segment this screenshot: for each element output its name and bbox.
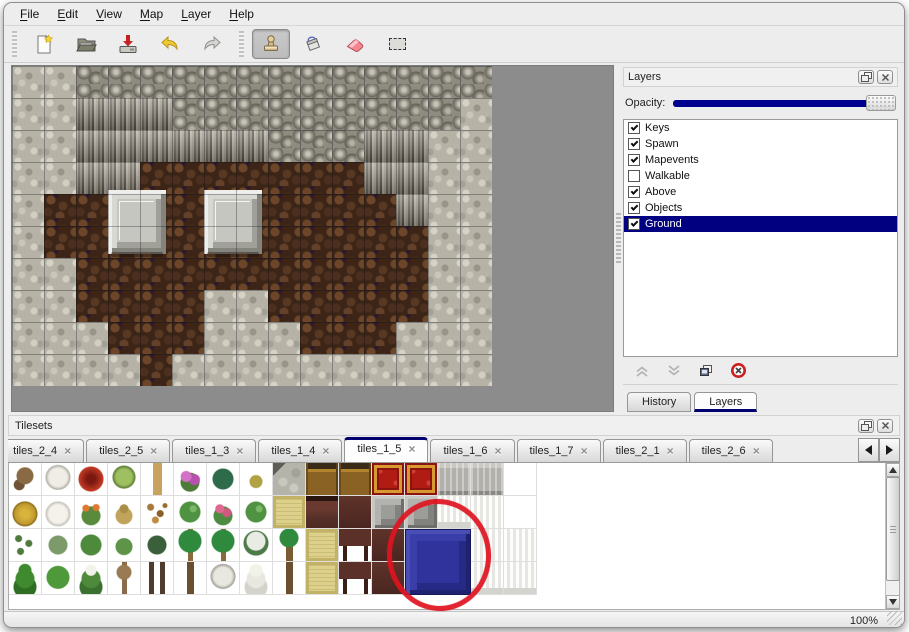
opacity-slider[interactable] (673, 95, 896, 111)
map-tile-rock-top (364, 98, 396, 130)
tileset-tab-label: tiles_1_3 (185, 445, 229, 457)
map-tile-brown-cobble-floor (172, 226, 204, 258)
map-tile-cliff-face (76, 98, 108, 130)
move-layer-up-button[interactable] (631, 361, 653, 381)
palette-tile-tatami[interactable] (306, 562, 339, 595)
palette-tile-maroon-legs[interactable] (339, 562, 372, 595)
palette-tile-snow-fir[interactable] (240, 562, 273, 595)
palette-tile-maroon-dark[interactable] (306, 496, 339, 529)
menu-edit[interactable]: Edit (48, 5, 87, 23)
palette-tile-palm-tall[interactable] (273, 529, 306, 562)
checkmark-icon (631, 187, 639, 195)
open-file-button[interactable] (67, 29, 105, 59)
map-tile-cliff-face (204, 130, 236, 162)
palette-tile-dark-trunks[interactable] (141, 562, 174, 595)
float-panel-button[interactable] (858, 419, 874, 433)
map-tile-pebble-ground (12, 258, 44, 290)
palette-tile-palm-trunk[interactable] (273, 562, 306, 595)
tileset-palette[interactable] (8, 463, 900, 610)
map-tile-cliff-face (364, 162, 396, 194)
zoom-level-status: 100% (850, 615, 878, 627)
map-tile-rock-top (428, 98, 460, 130)
tab-close-icon[interactable]: × (581, 444, 588, 458)
palette-tile-maroon-legs[interactable] (339, 529, 372, 562)
map-tile-cliff-face (76, 130, 108, 162)
tileset-tab-label: tiles_1_4 (271, 445, 315, 457)
map-tile-brown-cobble-floor (364, 290, 396, 322)
stone-pillar (204, 190, 262, 254)
map-tile-rock-top (396, 98, 428, 130)
triangle-up-icon (889, 467, 897, 473)
chevron-down-icon (666, 363, 682, 379)
map-tile-rock-top (332, 130, 364, 162)
tileset-tab-tiles_1_7[interactable]: tiles_1_7× (517, 439, 601, 462)
palette-tile-curtain-fringe[interactable] (504, 562, 537, 595)
map-tile-brown-cobble-floor (364, 322, 396, 354)
map-tile-pebble-ground (428, 226, 460, 258)
screenshot-stage: FileEditViewMapLayerHelp (0, 0, 909, 632)
tileset-tab-tiles_2_1[interactable]: tiles_2_1× (603, 439, 687, 462)
palette-tile-red-carpet[interactable] (372, 463, 405, 496)
palette-tile-dead-tree[interactable] (9, 463, 42, 496)
map-tile-cliff-face (140, 130, 172, 162)
float-panel-button[interactable] (858, 70, 874, 84)
map-tile-brown-cobble-floor (332, 162, 364, 194)
map-viewport[interactable] (11, 65, 614, 412)
menu-file[interactable]: File (11, 5, 48, 23)
map-tile-pebble-ground (460, 98, 492, 130)
map-tile-rock-top (364, 66, 396, 98)
map-tile-pebble-ground (428, 290, 460, 322)
tab-scroll-arrows (858, 438, 900, 462)
tab-close-icon[interactable]: × (753, 444, 760, 458)
map-tile-cliff-face (236, 130, 268, 162)
palette-tile-snow-mound[interactable] (42, 496, 75, 529)
map-tile-rock-top (268, 130, 300, 162)
fill-tool-button[interactable] (294, 29, 332, 59)
map-tile-brown-cobble-floor (300, 194, 332, 226)
scroll-up-button[interactable] (886, 463, 900, 477)
map-tile-brown-cobble-floor (172, 290, 204, 322)
layer-visibility-checkbox[interactable] (628, 218, 640, 230)
palette-tile-sprouts[interactable] (9, 529, 42, 562)
map-tile-pebble-ground (236, 322, 268, 354)
map-tile-rock-top (332, 66, 364, 98)
tab-close-icon[interactable]: × (150, 444, 157, 458)
map-tile-pebble-ground (44, 130, 76, 162)
palette-tile-empty[interactable] (504, 463, 537, 496)
map-tile-cliff-face (108, 130, 140, 162)
palette-tile-gray-tile[interactable] (438, 463, 471, 496)
map-tile-pebble-ground (428, 194, 460, 226)
map-tile-brown-cobble-floor (300, 162, 332, 194)
palette-scrollbar[interactable] (885, 463, 899, 609)
tab-close-icon[interactable]: × (495, 444, 502, 458)
map-tile-pebble-ground (12, 194, 44, 226)
palette-tile-roses[interactable] (207, 496, 240, 529)
scroll-tabs-right-button[interactable] (879, 438, 900, 462)
tab-close-icon[interactable]: × (64, 444, 71, 458)
palette-tile-herb[interactable] (240, 463, 273, 496)
close-panel-button[interactable] (877, 70, 893, 84)
layer-buttons-row (623, 357, 898, 385)
map-tile-pebble-ground (428, 354, 460, 386)
close-icon (881, 73, 890, 82)
map-tile-brown-cobble-floor (268, 258, 300, 290)
palette-tile-bare-tree[interactable] (108, 562, 141, 595)
map-tile-rock-top (268, 98, 300, 130)
duplicate-layer-button[interactable] (695, 361, 717, 381)
checkmark-icon (631, 123, 639, 131)
palette-tile-conifer[interactable] (9, 562, 42, 595)
layer-row-ground[interactable]: Ground (624, 216, 897, 232)
map-tile-brown-cobble-floor (364, 194, 396, 226)
map-tile-rock-top (172, 66, 204, 98)
palette-tile-lily-pad[interactable] (240, 496, 273, 529)
map-tile-pebble-ground (12, 66, 44, 98)
tileset-tab-tiles_2_5[interactable]: tiles_2_5× (86, 439, 170, 462)
redo-button[interactable] (193, 29, 231, 59)
map-tile-brown-cobble-floor (172, 258, 204, 290)
map-tile-pebble-ground (460, 290, 492, 322)
checkmark-icon (631, 155, 639, 163)
map-tile-brown-cobble-floor (396, 226, 428, 258)
dock-tab-layers[interactable]: Layers (694, 392, 757, 412)
map-tile-cliff-face (364, 130, 396, 162)
map-tile-pebble-ground (76, 354, 108, 386)
toolbar-grip[interactable] (239, 31, 244, 57)
map-tile-brown-cobble-floor (364, 258, 396, 290)
save-file-button[interactable] (109, 29, 147, 59)
map-tile-pebble-ground (108, 354, 140, 386)
layer-row-walkable[interactable]: Walkable (624, 168, 897, 184)
map-tile-pebble-ground (44, 66, 76, 98)
palette-tile-empty[interactable] (504, 496, 537, 529)
dock-splitter[interactable] (614, 65, 623, 412)
map-tile-rock-top (204, 66, 236, 98)
map-tile-brown-cobble-floor (76, 226, 108, 258)
tab-close-icon[interactable]: × (322, 444, 329, 458)
map-tile-brown-cobble-floor (44, 226, 76, 258)
map-editor-window: FileEditViewMapLayerHelp (3, 2, 905, 628)
palette-tile-stump[interactable] (108, 463, 141, 496)
tileset-tab-label: tiles_2_4 (13, 445, 57, 457)
map-tile-rock-top (332, 98, 364, 130)
map-tile-brown-cobble-floor (332, 194, 364, 226)
layer-row-objects[interactable]: Objects (624, 200, 897, 216)
palette-tile-red-carpet[interactable] (405, 463, 438, 496)
map-tile-pebble-ground (44, 290, 76, 322)
palette-tile-snow-tree[interactable] (42, 463, 75, 496)
map-tile-rock-top (428, 66, 460, 98)
palette-tile-curtain[interactable] (504, 529, 537, 562)
map-tile-pebble-ground (396, 354, 428, 386)
triangle-right-icon (886, 445, 893, 455)
tileset-tab-tiles_2_4[interactable]: tiles_2_4× (8, 439, 84, 462)
layers-panel-header: Layers (623, 67, 898, 87)
opacity-slider-fill (673, 100, 896, 107)
move-layer-down-button[interactable] (663, 361, 685, 381)
menubar: FileEditViewMapLayerHelp (4, 3, 904, 26)
tab-close-icon[interactable]: × (408, 442, 415, 456)
menu-help[interactable]: Help (220, 5, 263, 23)
map-tile-brown-cobble-floor (396, 258, 428, 290)
fill-tool-icon (302, 33, 324, 55)
stone-pillar (108, 190, 166, 254)
layer-visibility-checkbox[interactable] (628, 202, 640, 214)
tileset-tab-tiles_1_4[interactable]: tiles_1_4× (258, 439, 342, 462)
map-tile-rock-top (300, 66, 332, 98)
opacity-slider-handle[interactable] (866, 95, 896, 111)
float-icon (861, 421, 872, 431)
tilesets-panel-title: Tilesets (15, 420, 855, 432)
map-tile-brown-cobble-floor (268, 194, 300, 226)
map-tile-brown-cobble-floor (268, 226, 300, 258)
layer-list: KeysSpawnMapeventsWalkableAboveObjectsGr… (623, 119, 898, 357)
layer-visibility-checkbox[interactable] (628, 186, 640, 198)
map-tile-brown-cobble-floor (76, 194, 108, 226)
map-tile-pebble-ground (44, 322, 76, 354)
map-tile-brown-cobble-floor (332, 322, 364, 354)
tilesets-panel-header: Tilesets (8, 415, 900, 436)
palette-tile-bush-gray[interactable] (42, 529, 75, 562)
opacity-row: Opacity: (623, 90, 898, 116)
palette-tile-snow-palm[interactable] (240, 529, 273, 562)
map-tile-cliff-face (140, 98, 172, 130)
chevron-up-icon (634, 363, 650, 379)
map-tile-rock-top (140, 66, 172, 98)
stamp-tool-icon (260, 33, 282, 55)
map-tile-pebble-ground (172, 354, 204, 386)
tileset-tab-label: tiles_2_6 (702, 445, 746, 457)
map-tile-pebble-ground (12, 98, 44, 130)
map-tile-brown-cobble-floor (332, 290, 364, 322)
map-tile-pebble-ground (44, 258, 76, 290)
undo-button[interactable] (151, 29, 189, 59)
map-tile-brown-cobble-floor (268, 290, 300, 322)
palette-tile-bush-dark[interactable] (141, 529, 174, 562)
layer-name: Spawn (645, 138, 679, 150)
delete-layer-button[interactable] (727, 361, 749, 381)
map-tile-pebble-ground (12, 354, 44, 386)
map-tile-brown-cobble-floor (140, 322, 172, 354)
palette-tile-pink-flowers[interactable] (174, 463, 207, 496)
map-tile-brown-cobble-floor (108, 322, 140, 354)
map-tile-rock-top (300, 130, 332, 162)
layer-visibility-checkbox[interactable] (628, 154, 640, 166)
palette-tile-leaves[interactable] (141, 496, 174, 529)
layer-row-above[interactable]: Above (624, 184, 897, 200)
palette-tile-bush[interactable] (75, 529, 108, 562)
palette-tile-snow-tree-2[interactable] (207, 562, 240, 595)
select-tool-button[interactable] (378, 29, 416, 59)
tileset-tab-tiles_1_6[interactable]: tiles_1_6× (430, 439, 514, 462)
map-tile-pebble-ground (268, 322, 300, 354)
palette-tile-trunk[interactable] (141, 463, 174, 496)
map-tile-pebble-ground (460, 258, 492, 290)
duplicate-icon (698, 363, 714, 379)
scroll-tabs-left-button[interactable] (858, 438, 879, 462)
map-tile-cliff-face (76, 162, 108, 194)
tileset-tab-label: tiles_1_7 (530, 445, 574, 457)
map-tile-brown-cobble-floor (172, 194, 204, 226)
map-tile-brown-cobble-floor (300, 322, 332, 354)
palette-tile-maroon[interactable] (339, 496, 372, 529)
close-icon (881, 421, 890, 430)
checkmark-icon (631, 219, 639, 227)
layer-visibility-checkbox[interactable] (628, 138, 640, 150)
map-tile-brown-cobble-floor (300, 258, 332, 290)
map-tile-pebble-ground (460, 130, 492, 162)
tileset-tab-label: tiles_1_5 (357, 443, 401, 455)
palette-tile-orange-flowers[interactable] (75, 496, 108, 529)
palette-tile-bush-small[interactable] (108, 529, 141, 562)
tileset-tab-label: tiles_1_6 (443, 445, 487, 457)
tileset-tab-tiles_1_3[interactable]: tiles_1_3× (172, 439, 256, 462)
scrollbar-thumb[interactable] (886, 477, 900, 581)
palette-tile-wood-top[interactable] (306, 463, 339, 496)
layer-row-mapevents[interactable]: Mapevents (624, 152, 897, 168)
map-tile-brown-cobble-floor (236, 258, 268, 290)
splitter-grip-icon (616, 213, 621, 265)
scroll-down-button[interactable] (886, 595, 900, 609)
map-tile-brown-cobble-floor (172, 322, 204, 354)
map-tile-brown-cobble-floor (108, 290, 140, 322)
new-file-icon (33, 33, 55, 55)
new-file-button[interactable] (25, 29, 63, 59)
map-tile-brown-cobble-floor (300, 226, 332, 258)
map-tile-pebble-ground (12, 290, 44, 322)
map-tile-pebble-ground (12, 130, 44, 162)
palette-tile-palm-trunk[interactable] (174, 562, 207, 595)
palette-tile-palm[interactable] (207, 529, 240, 562)
map-tile-cliff-face (396, 194, 428, 226)
palette-tile-dry-grass[interactable] (108, 496, 141, 529)
layer-name: Walkable (645, 170, 690, 182)
map-tile-pebble-ground (460, 322, 492, 354)
layer-visibility-checkbox[interactable] (628, 122, 640, 134)
tileset-tab-label: tiles_2_1 (616, 445, 660, 457)
layer-name: Mapevents (645, 154, 699, 166)
map-tile-pebble-ground (268, 354, 300, 386)
eraser-tool-button[interactable] (336, 29, 374, 59)
palette-tile-stone-corner[interactable] (273, 463, 306, 496)
map-tile-pebble-ground (460, 354, 492, 386)
palette-tile-wood-top[interactable] (339, 463, 372, 496)
map-tile-rock-top (268, 66, 300, 98)
palette-tile-snow-conifer[interactable] (75, 562, 108, 595)
map-tile-brown-cobble-floor (332, 226, 364, 258)
tab-close-icon[interactable]: × (667, 444, 674, 458)
toolbar (4, 26, 904, 63)
tileset-tab-bar: 3×tiles_2_4×tiles_2_5×tiles_1_3×tiles_1_… (8, 436, 900, 463)
menu-layer[interactable]: Layer (172, 5, 220, 23)
map-tile-rock-top (204, 98, 236, 130)
layers-dock: Layers Opacity: (623, 65, 904, 412)
map-tile-brown-cobble-floor (172, 162, 204, 194)
palette-tile-tatami[interactable] (273, 496, 306, 529)
statusbar: 100% (4, 611, 904, 628)
map-tile-brown-cobble-floor (204, 258, 236, 290)
tileset-tab-tiles_1_5[interactable]: tiles_1_5× (344, 437, 428, 462)
map-tile-brown-cobble-floor (364, 226, 396, 258)
map-tile-brown-cobble-floor (268, 162, 300, 194)
map-tile-pebble-ground (428, 162, 460, 194)
palette-tile-red-flower[interactable] (75, 463, 108, 496)
map-tile-pebble-ground (44, 98, 76, 130)
map-tile-pebble-ground (204, 322, 236, 354)
layer-name: Above (645, 186, 676, 198)
layers-panel-title: Layers (628, 71, 855, 83)
toolbar-grip[interactable] (12, 31, 17, 57)
layer-visibility-checkbox[interactable] (628, 170, 640, 182)
layer-name: Ground (645, 218, 682, 230)
palette-tile-tatami[interactable] (306, 529, 339, 562)
map-tile-rock-top (300, 98, 332, 130)
checkmark-icon (631, 203, 639, 211)
map-tile-pebble-ground (396, 322, 428, 354)
menu-map[interactable]: Map (131, 5, 172, 23)
main-area: Layers Opacity: (4, 65, 904, 412)
stamp-tool-button[interactable] (252, 29, 290, 59)
dock-tab-bar: HistoryLayers (623, 385, 898, 412)
map-tile-rock-top (236, 98, 268, 130)
map-tile-pebble-ground (332, 354, 364, 386)
map-canvas[interactable] (12, 66, 492, 386)
dock-tab-history[interactable]: History (627, 392, 691, 412)
map-tile-brown-cobble-floor (76, 258, 108, 290)
map-tile-pebble-ground (76, 322, 108, 354)
undo-icon (159, 33, 181, 55)
map-tile-pebble-ground (44, 162, 76, 194)
map-tile-pebble-ground (300, 354, 332, 386)
select-tool-icon (389, 38, 406, 50)
map-tile-pebble-ground (204, 354, 236, 386)
palette-tile-gray-tile[interactable] (471, 463, 504, 496)
open-file-icon (75, 33, 97, 55)
palette-tile-hay-mound[interactable] (9, 496, 42, 529)
close-panel-button[interactable] (877, 419, 893, 433)
tileset-tab-tiles_2_6[interactable]: tiles_2_6× (689, 439, 773, 462)
menu-view[interactable]: View (87, 5, 131, 23)
opacity-label: Opacity: (625, 97, 665, 109)
tileset-tab-label: tiles_2_5 (99, 445, 143, 457)
delete-icon (730, 362, 747, 379)
eraser-tool-icon (344, 33, 366, 55)
palette-tile-lily-pad[interactable] (174, 496, 207, 529)
palette-tile-fern[interactable] (207, 463, 240, 496)
map-tile-pebble-ground (44, 354, 76, 386)
layer-row-spawn[interactable]: Spawn (624, 136, 897, 152)
map-tile-pebble-ground (236, 354, 268, 386)
layer-row-keys[interactable]: Keys (624, 120, 897, 136)
map-tile-cliff-face (108, 98, 140, 130)
map-tile-rock-top (396, 66, 428, 98)
map-tile-brown-cobble-floor (140, 354, 172, 386)
save-file-icon (117, 33, 139, 55)
resize-grip[interactable] (887, 611, 902, 625)
map-tile-brown-cobble-floor (44, 194, 76, 226)
palette-tile-palm[interactable] (174, 529, 207, 562)
palette-tile-round-tree[interactable] (42, 562, 75, 595)
map-tile-pebble-ground (460, 226, 492, 258)
map-tile-pebble-ground (460, 194, 492, 226)
map-tile-brown-cobble-floor (300, 290, 332, 322)
tab-close-icon[interactable]: × (236, 444, 243, 458)
map-tile-pebble-ground (428, 130, 460, 162)
map-tile-pebble-ground (460, 162, 492, 194)
map-tile-pebble-ground (12, 226, 44, 258)
